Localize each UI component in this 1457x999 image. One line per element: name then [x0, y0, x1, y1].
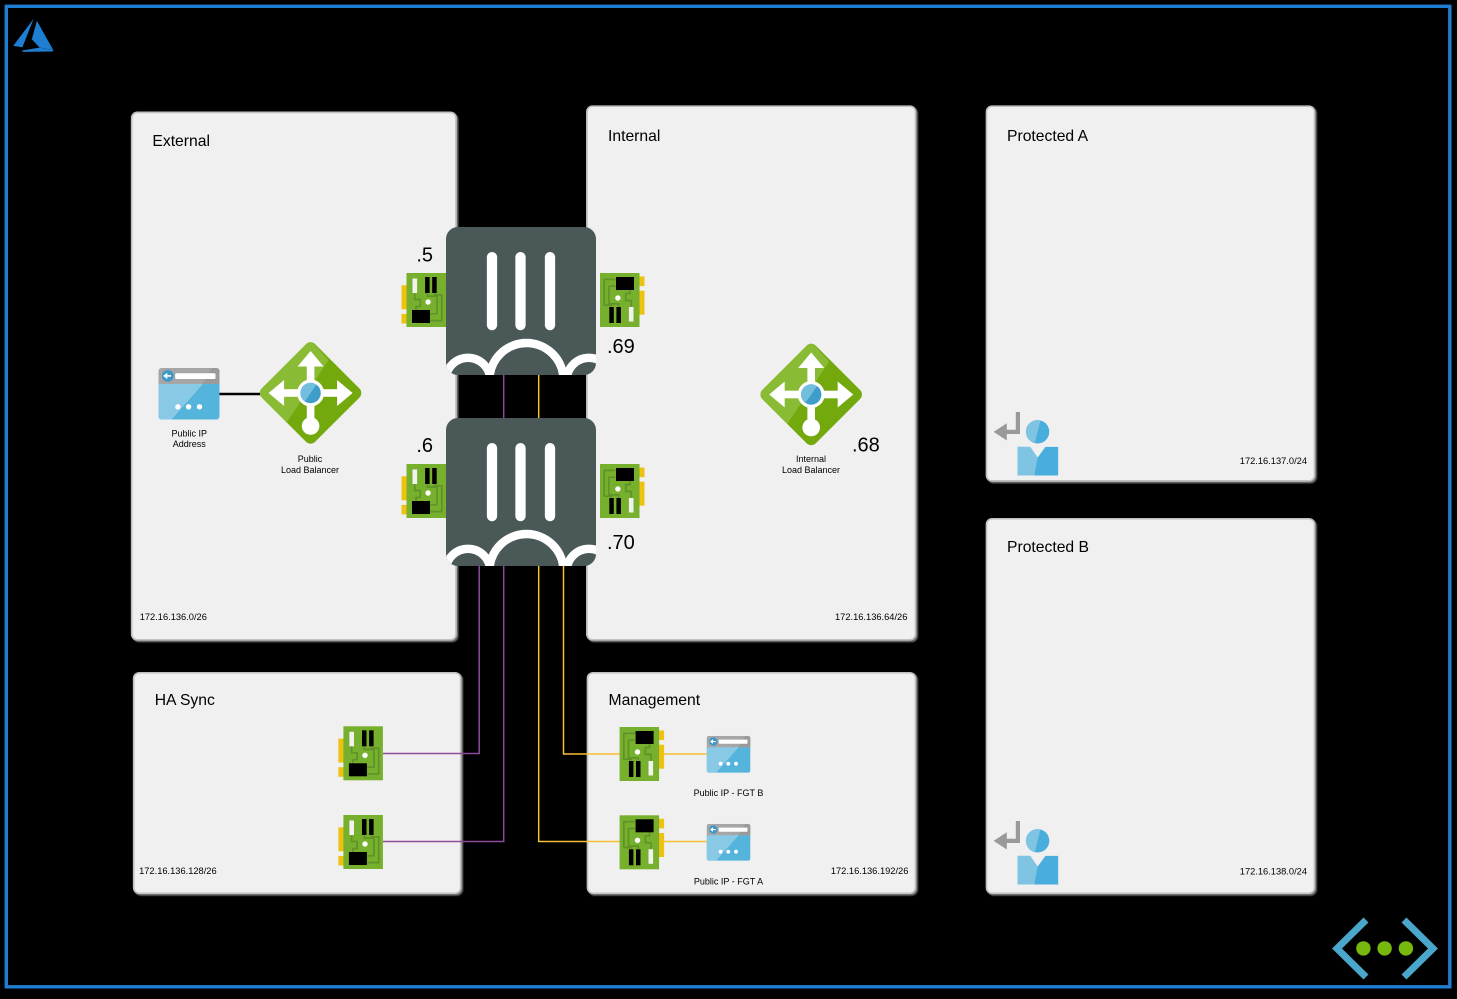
svg-text:HA Sync: HA Sync — [155, 692, 215, 709]
svg-text:172.16.137.0/24: 172.16.137.0/24 — [1240, 456, 1307, 466]
svg-text:Public IP - FGT B: Public IP - FGT B — [694, 788, 764, 798]
svg-text:Management: Management — [609, 692, 701, 709]
svg-text:172.16.136.128/26: 172.16.136.128/26 — [139, 866, 217, 876]
svg-text:.68: .68 — [852, 435, 880, 457]
svg-text:.5: .5 — [416, 245, 433, 267]
svg-text:Public IP: Public IP — [172, 428, 208, 438]
svg-text:Load Balancer: Load Balancer — [281, 465, 339, 475]
svg-text:Protected A: Protected A — [1007, 128, 1089, 145]
svg-text:Internal: Internal — [608, 128, 660, 145]
svg-text:172.16.136.192/26: 172.16.136.192/26 — [831, 866, 909, 876]
svg-text:Internal: Internal — [796, 454, 826, 464]
svg-text:Public: Public — [298, 454, 323, 464]
svg-text:172.16.138.0/24: 172.16.138.0/24 — [1240, 867, 1307, 877]
svg-text:.6: .6 — [416, 435, 433, 457]
svg-text:Protected B: Protected B — [1007, 539, 1089, 556]
svg-text:.70: .70 — [607, 532, 635, 554]
svg-text:Address: Address — [173, 439, 207, 449]
svg-text:External: External — [152, 133, 210, 150]
svg-text:172.16.136.0/26: 172.16.136.0/26 — [140, 612, 207, 622]
svg-text:Load Balancer: Load Balancer — [782, 465, 840, 475]
svg-text:Public IP - FGT A: Public IP - FGT A — [694, 876, 763, 886]
svg-text:172.16.136.64/26: 172.16.136.64/26 — [835, 612, 907, 622]
svg-text:.69: .69 — [607, 336, 635, 358]
